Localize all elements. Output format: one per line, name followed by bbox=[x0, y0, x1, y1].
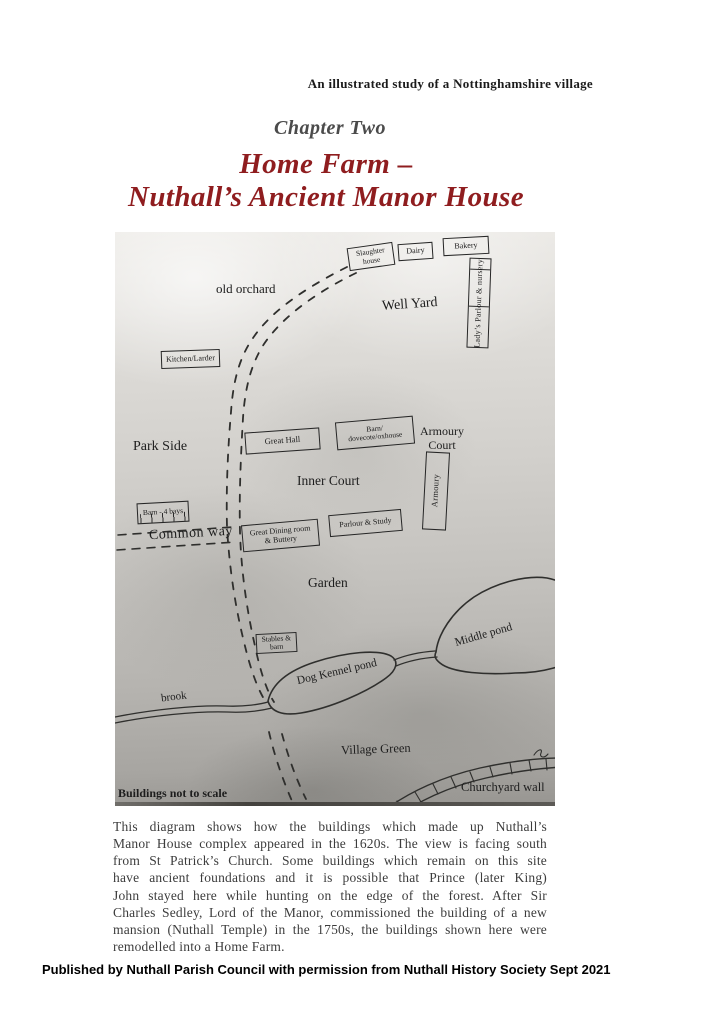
box-label: Kitchen/Larder bbox=[166, 354, 215, 364]
chapter-heading: Chapter Two bbox=[113, 117, 547, 140]
area-label-garden: Garden bbox=[308, 575, 348, 591]
driveway-dashed-line-right-lower bbox=[282, 734, 306, 799]
driveway-dashed-line-left-lower bbox=[269, 732, 296, 806]
caption-line: mansion (Nuthall Temple) in the 1750s, t… bbox=[113, 921, 547, 938]
building-box-ladys-parlour-nursery: Lady’s Parlour & nursery bbox=[466, 258, 491, 349]
area-label-village-green: Village Green bbox=[341, 741, 411, 758]
area-label-line: Court bbox=[428, 438, 455, 452]
caption-line: Charles Sedley, Lord of the Manor, commi… bbox=[113, 904, 547, 921]
pond-connecting-channel-upper bbox=[394, 651, 435, 660]
area-label-inner-court: Inner Court bbox=[297, 473, 360, 489]
box-label: & Buttery bbox=[264, 534, 297, 545]
box-label: Lady’s Parlour & nursery bbox=[473, 259, 485, 348]
box-label: house bbox=[362, 255, 380, 265]
common-way-dashed-line-lower bbox=[117, 542, 236, 550]
area-label-line: Armoury bbox=[420, 424, 464, 438]
caption-line: John stayed here while hunting on the ed… bbox=[113, 887, 547, 904]
brook-stream-line-upper bbox=[115, 702, 268, 717]
building-box-armoury: Armoury bbox=[422, 451, 450, 530]
caption-line: from St Patrick’s Church. Some buildings… bbox=[113, 852, 547, 869]
brook-stream-line-lower bbox=[115, 708, 272, 723]
building-box-bakery: Bakery bbox=[443, 236, 490, 256]
caption-line: remodelled into a Home Farm. bbox=[113, 938, 547, 955]
caption-line: This diagram shows how the buildings whi… bbox=[113, 818, 547, 835]
pond-connecting-channel-lower bbox=[396, 657, 437, 666]
scale-note: Buildings not to scale bbox=[118, 786, 227, 801]
barn-bay-dividers bbox=[140, 512, 186, 523]
box-label: barn bbox=[270, 643, 284, 652]
area-label-armoury-court: Armoury Court bbox=[415, 425, 469, 453]
area-label-park-side: Park Side bbox=[133, 439, 187, 455]
building-box-kitchen-larder: Kitchen/Larder bbox=[161, 349, 221, 369]
building-box-dairy: Dairy bbox=[397, 242, 433, 261]
building-box-stables-barn: Stables & barn bbox=[256, 632, 298, 654]
box-label: Great Hall bbox=[264, 435, 300, 447]
box-label: Armoury bbox=[431, 474, 442, 508]
caption-line: have ancient foundations and it is possi… bbox=[113, 869, 547, 886]
caption-paragraph: This diagram shows how the buildings whi… bbox=[113, 818, 547, 955]
wall-end-squiggle bbox=[534, 750, 548, 757]
building-box-barn-4-bays: Barn - 4 bays bbox=[136, 501, 189, 525]
box-label: Parlour & Study bbox=[339, 516, 392, 529]
box-label: Dairy bbox=[406, 247, 425, 257]
manor-house-plan-figure: Slaughter house Dairy Bakery Lady’s Parl… bbox=[115, 232, 555, 806]
scan-bottom-edge bbox=[115, 802, 555, 806]
page-title: Home Farm – Nuthall’s Ancient Manor Hous… bbox=[76, 148, 576, 214]
title-line-1: Home Farm – bbox=[239, 148, 413, 180]
caption-line: Manor House complex appeared in the 1620… bbox=[113, 835, 547, 852]
area-label-old-orchard: old orchard bbox=[216, 281, 276, 297]
area-label-churchyard-wall: Churchyard wall bbox=[461, 780, 545, 795]
publication-footer: Published by Nuthall Parish Council with… bbox=[42, 962, 682, 977]
box-label: Bakery bbox=[454, 241, 478, 251]
box-label: dovecote/oxhouse bbox=[348, 431, 403, 444]
running-header: An illustrated study of a Nottinghamshir… bbox=[0, 76, 593, 92]
title-line-2: Nuthall’s Ancient Manor House bbox=[128, 181, 524, 213]
